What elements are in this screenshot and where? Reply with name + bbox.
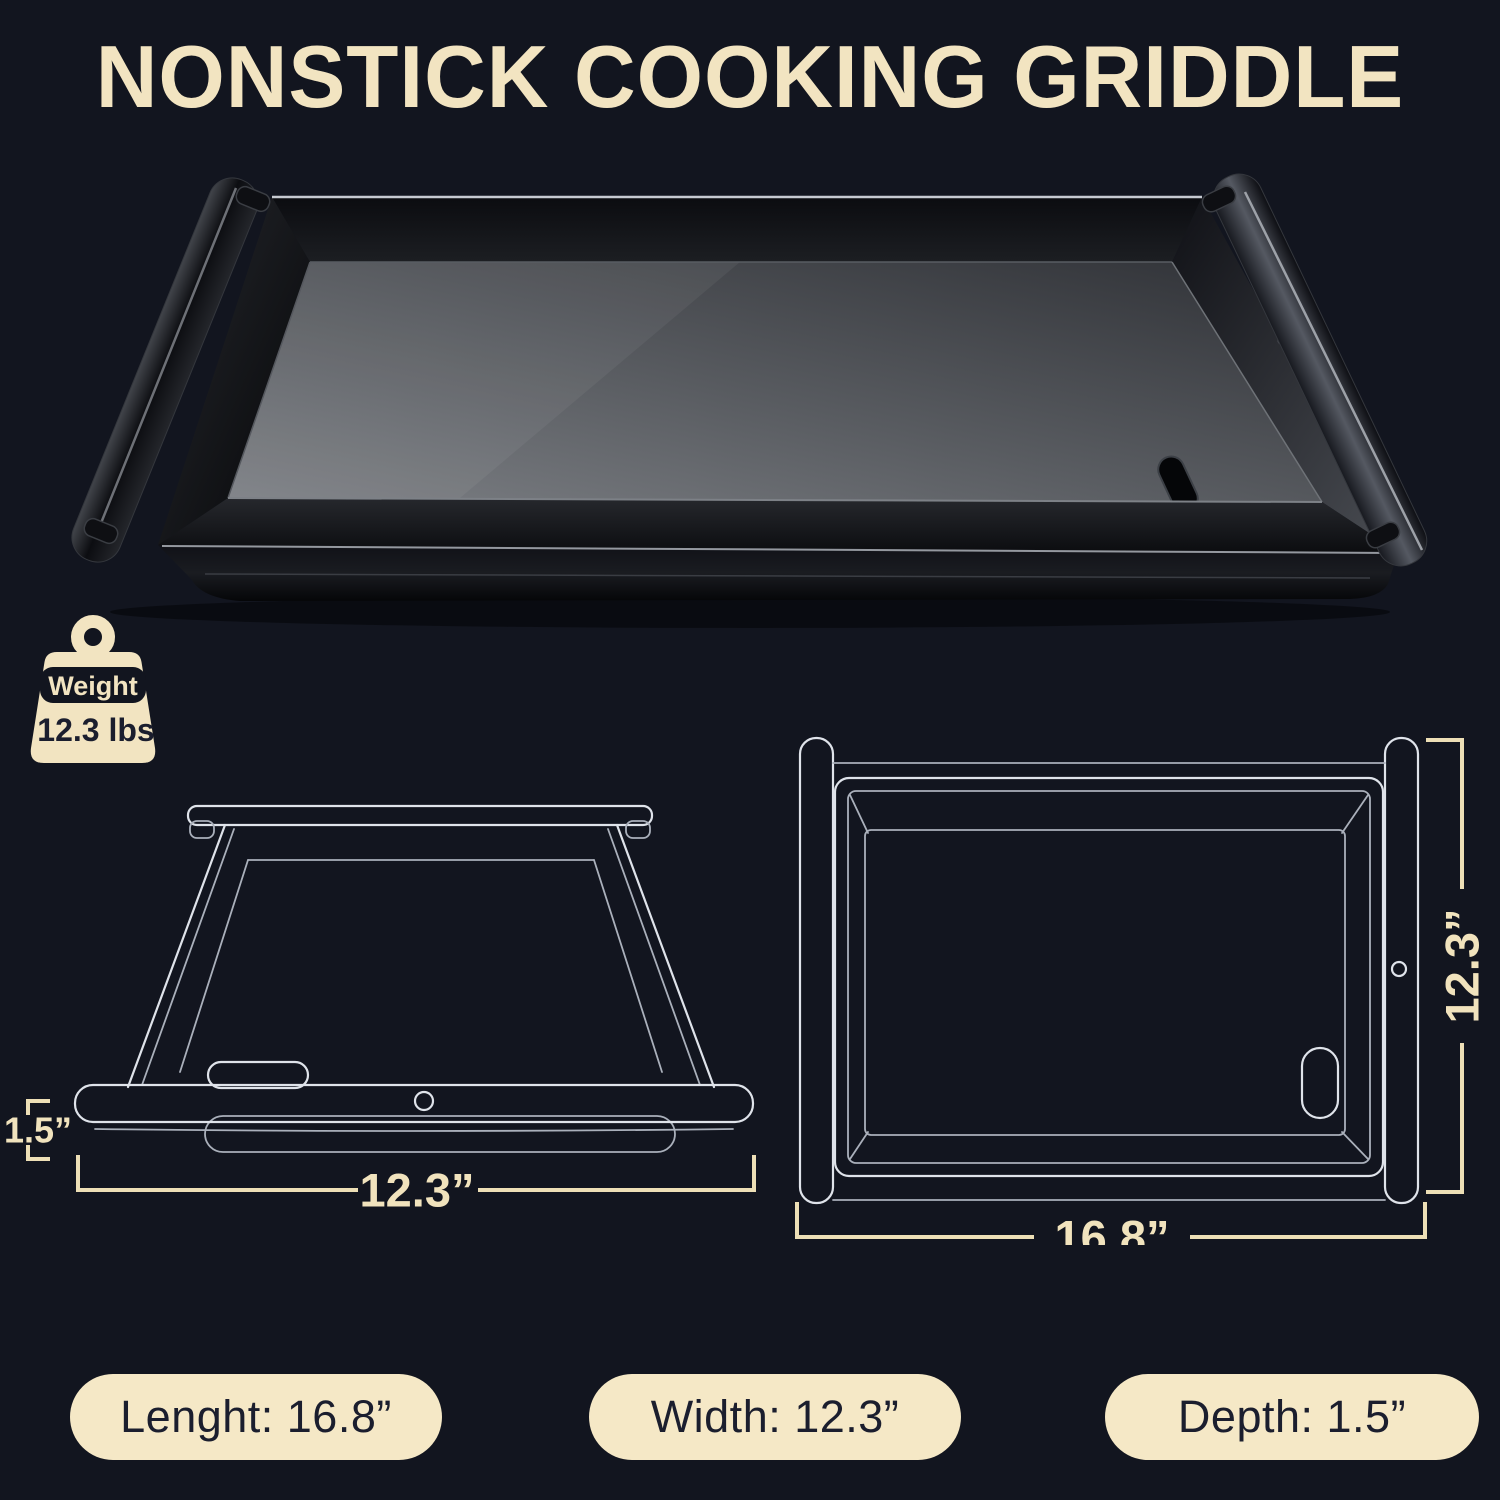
sideview-left-outer-edge <box>128 825 225 1087</box>
page-title: NONSTICK COOKING GRIDDLE <box>23 26 1478 128</box>
topview-rim-inner <box>848 791 1370 1163</box>
weight-icon: Weight 12.3 lbs <box>25 600 205 785</box>
sideview-floor-right-edge <box>594 860 662 1072</box>
sideview-right-outer-edge <box>617 825 714 1087</box>
length-spec-badge: Lenght: 16.8” <box>70 1374 442 1460</box>
topview-corner-diag-bl <box>850 1132 868 1159</box>
length-spec-text: Lenght: 16.8” <box>120 1391 392 1443</box>
height-dimension-label: 12.3” <box>1436 909 1489 1024</box>
weight-label: Weight <box>48 671 138 701</box>
side-view-diagram: 1.5” 12.3” <box>0 780 780 1220</box>
topview-rim-outer <box>835 778 1383 1176</box>
weight-ring <box>78 622 109 653</box>
sideview-hole <box>415 1092 433 1110</box>
width-spec-badge: Width: 12.3” <box>589 1374 961 1460</box>
width-dimension-label: 12.3” <box>360 1164 475 1217</box>
length-dimension-label: 16.8” <box>1055 1211 1170 1246</box>
weight-value: 12.3 lbs <box>37 712 154 748</box>
depth-spec-badge: Depth: 1.5” <box>1105 1374 1479 1460</box>
near-rim <box>158 498 1398 552</box>
infographic-page: NONSTICK COOKING GRIDDLE <box>0 0 1500 1500</box>
topview-corner-diag-tl <box>850 795 868 833</box>
griddle-product-image <box>40 160 1460 630</box>
topview-left-rail <box>800 738 833 1203</box>
sideview-near-rail-underline <box>95 1129 733 1131</box>
sideview-far-rail <box>188 806 652 825</box>
depth-dimension-label: 1.5” <box>4 1110 72 1151</box>
front-face <box>158 545 1398 601</box>
depth-spec-text: Depth: 1.5” <box>1178 1391 1406 1443</box>
topview-corner-diag-br <box>1342 1132 1368 1159</box>
top-view-diagram: 12.3” 16.8” <box>780 715 1500 1245</box>
topview-grease-slot <box>1302 1048 1338 1118</box>
width-spec-text: Width: 12.3” <box>651 1391 900 1443</box>
sideview-floor-left-edge <box>180 860 248 1072</box>
topview-corner-diag-tr <box>1342 795 1368 833</box>
topview-right-rail <box>1385 738 1418 1203</box>
topview-hole <box>1392 962 1406 976</box>
topview-floor <box>865 830 1345 1135</box>
griddle-far-wall <box>272 197 1202 262</box>
